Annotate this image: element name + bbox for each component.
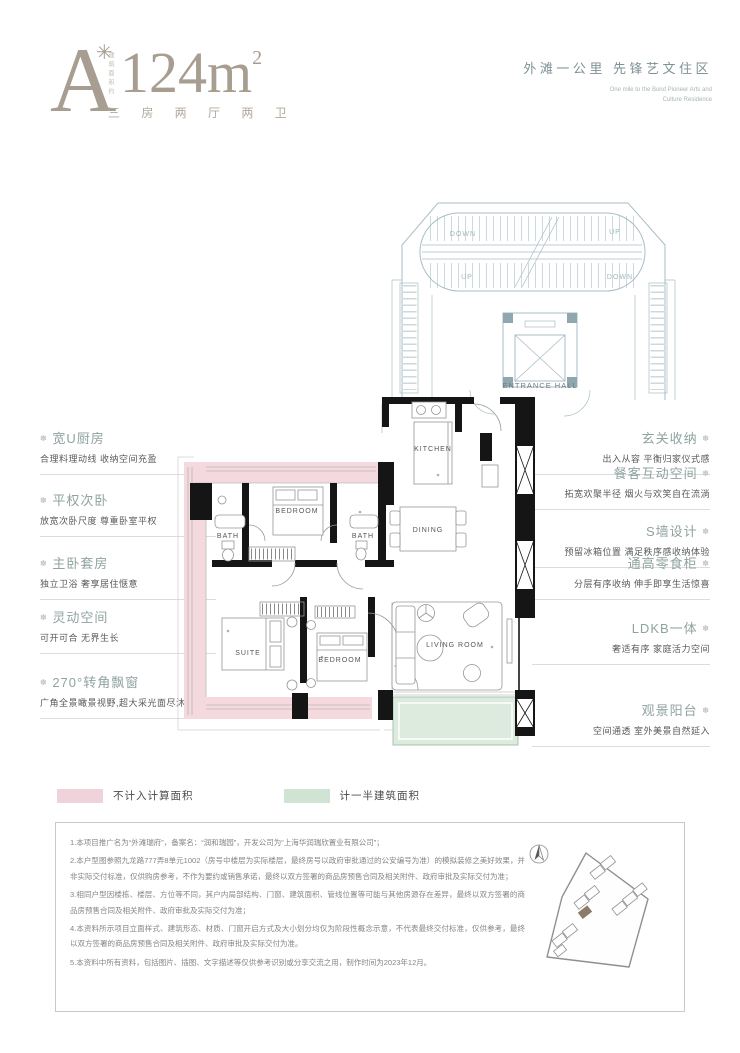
bedroom-lower-label: BEDROOM (318, 657, 361, 664)
diamond-bullet-icon: ✽ (40, 434, 48, 443)
entrance-hall-label: ENTRANCE HALL (502, 381, 577, 390)
svg-text:UP: UP (609, 229, 621, 236)
compass-icon (530, 845, 548, 863)
layout-spec: 三 房 两 厅 两 卫 (108, 104, 296, 121)
disclaimer-text: 1.本项目推广名为“外滩瑞府”，备案名：“润和瑞园”，开发公司为“上海华润瑞欣置… (70, 835, 525, 973)
bedroom-lower-furniture (307, 606, 368, 688)
svg-text:UP: UP (461, 274, 473, 281)
living-room-label: LIVING ROOM (426, 642, 484, 649)
floorplan-drawing: DOWN UP UP DOWN ENTRANCE HALL (170, 185, 710, 785)
tagline-en-line1: One mile to the Bund Pioneer Arts and (523, 85, 712, 95)
disclaimer-line: 3.相同户型因楼栋、楼层、方位等不同，其户内局部结构、门窗、建筑面积、管线位置等… (70, 887, 525, 918)
annotation-title-text: 270°转角飘窗 (52, 675, 139, 690)
area-value: 124m2 (120, 44, 262, 102)
disclaimer-line: 1.本项目推广名为“外滩瑞府”，备案名：“润和瑞园”，开发公司为“上海华润瑞欣置… (70, 835, 525, 850)
floorplan-svg: DOWN UP UP DOWN ENTRANCE HALL (170, 185, 710, 785)
disclaimer-line: 4.本资料所示项目立面样式、建筑形态、材质、门窗开启方式及大小划分均仅为阶段性概… (70, 921, 525, 952)
bath2-label: BATH (352, 533, 374, 540)
svg-text:DOWN: DOWN (450, 231, 476, 238)
legend-green-swatch (284, 789, 330, 803)
legend-pink-swatch (57, 789, 103, 803)
suite-furniture (222, 602, 304, 690)
disclaimer-line: 2.本户型图参照九龙路777弄8单元1002（房号中楼层为实际楼层，最终房号以政… (70, 853, 525, 884)
annotation-title-text: 平权次卧 (52, 493, 108, 508)
annotation-title-text: 宽U厨房 (52, 431, 104, 446)
structural-walls (190, 397, 535, 736)
tagline-en: One mile to the Bund Pioneer Arts and Cu… (523, 85, 712, 105)
kitchen-label: KITCHEN (414, 446, 452, 453)
diamond-bullet-icon: ✽ (40, 496, 48, 505)
bath1-label: BATH (217, 533, 239, 540)
annotation-title-text: 主卧套房 (52, 556, 108, 571)
disclaimer-box: 1.本项目推广名为“外滩瑞府”，备案名：“润和瑞园”，开发公司为“上海华润瑞欣置… (55, 822, 685, 1012)
bath1-fixtures (215, 496, 245, 561)
area-sup: 2 (252, 47, 262, 69)
suite-label: SUITE (235, 650, 261, 657)
tagline-en-line2: Culture Residence (523, 95, 712, 105)
floorplan-poster: A ✳ 建筑面积约 124m2 三 房 两 厅 两 卫 外滩一公里 先锋艺文住区… (0, 0, 740, 1053)
bedroom-top-furniture (249, 487, 323, 561)
balcony-zone (393, 697, 518, 745)
legend-pink-label: 不计入计算面积 (113, 788, 194, 803)
dining-label: DINING (413, 527, 444, 534)
area-number: 124m (120, 40, 252, 105)
site-map (524, 837, 679, 997)
legend-green-label: 计一半建筑面积 (340, 788, 421, 803)
annotation-title-text: 灵动空间 (52, 610, 108, 625)
diamond-bullet-icon: ✽ (40, 678, 48, 687)
outer-boundary (178, 457, 520, 730)
disclaimer-line: 5.本资料中所有资料，包括图片、插图、文字描述等仅供参考识别或分享交流之用，制作… (70, 955, 525, 970)
project-tagline: 外滩一公里 先锋艺文住区 One mile to the Bund Pionee… (523, 58, 712, 105)
diamond-bullet-icon: ✽ (40, 559, 48, 568)
tagline-cn: 外滩一公里 先锋艺文住区 (523, 58, 712, 77)
bedroom-top-label: BEDROOM (275, 508, 318, 515)
svg-text:DOWN: DOWN (607, 274, 633, 281)
diamond-bullet-icon: ✽ (40, 613, 48, 622)
area-vertical-label: 建筑面积约 (106, 52, 115, 97)
legend: 不计入计算面积 计一半建筑面积 (57, 788, 420, 803)
